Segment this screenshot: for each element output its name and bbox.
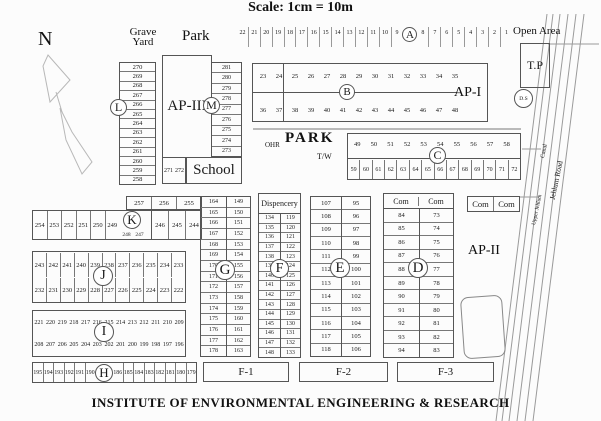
plot-number: 132 (281, 338, 300, 348)
block-k-under-plots: 248247 (120, 230, 146, 239)
plot-number: 186 (113, 363, 123, 382)
plot-number: 256 (151, 197, 176, 209)
plot-number: 113 (311, 276, 341, 289)
plot-number: 274 (212, 135, 241, 145)
plot-number: 145 (259, 319, 280, 329)
plot-number: 62 (384, 160, 396, 179)
commercial-pair-boxes: ComCom (467, 196, 520, 212)
plot-number: 133 (281, 347, 300, 357)
plot-number: 115 (311, 303, 341, 316)
block-h-right-plots: 186185184183182181180179 (113, 363, 196, 382)
plot-number: 182 (154, 363, 165, 382)
plot-number: 119 (281, 214, 300, 223)
plot-number: 240 (74, 253, 88, 277)
ap1-area-label: AP-I (454, 85, 481, 101)
plot-number: 134 (259, 214, 280, 223)
plot-number: 15 (320, 27, 332, 47)
plot-number: 166 (201, 217, 226, 228)
plot-number: 93 (384, 330, 419, 344)
plot-number: 250 (90, 211, 105, 239)
plot-number: 89 (384, 276, 419, 290)
plot-number: 7 (429, 27, 441, 47)
plot-number: 72 (508, 160, 520, 179)
plot-number: 158 (227, 292, 250, 303)
plot-number: 247 (133, 230, 146, 239)
plot-number: 84 (384, 209, 419, 222)
block-f-left-column: 1341351361371381391401411421431441451461… (259, 214, 280, 357)
plot-number: 136 (259, 232, 280, 242)
block-d-right-column: 7374757677787980818283 (419, 209, 453, 357)
plot-number: 176 (201, 324, 226, 335)
plot-number: 135 (259, 223, 280, 233)
plot-number: 121 (281, 232, 300, 242)
f3-area: F-3 (397, 362, 494, 382)
plot-number: 105 (342, 329, 370, 342)
plot-number: 14 (332, 27, 344, 47)
plot-number: 162 (227, 335, 250, 346)
plot-number: 180 (175, 363, 186, 382)
plot-number: 42 (351, 104, 367, 116)
plot-number: Com (468, 197, 493, 211)
plot-number: 3 (477, 27, 489, 47)
plot-number: 150 (227, 207, 250, 218)
plot-number: 118 (311, 343, 341, 356)
plot-number: 252 (61, 211, 76, 239)
block-d-left-column: 8485868788899091929394 (384, 209, 419, 357)
plot-number: 102 (342, 289, 370, 302)
plot-number: 6 (441, 27, 453, 47)
plot-number: 245 (168, 211, 185, 239)
plot-number: 235 (143, 253, 157, 277)
plot-number: 11 (368, 27, 380, 47)
plot-number: 18 (285, 27, 297, 47)
plot-number: 137 (259, 242, 280, 252)
plot-number: 107 (311, 197, 341, 209)
plot-number: 193 (53, 363, 64, 382)
plot-number: 59 (348, 160, 359, 179)
plot-number: Com (493, 197, 519, 211)
plot-number: 103 (342, 303, 370, 316)
plot-number: 263 (120, 128, 155, 137)
block-h-marker: H (95, 364, 113, 382)
plot-number: 147 (259, 338, 280, 348)
plot-number: 173 (201, 292, 226, 303)
plot-number: 242 (46, 253, 60, 277)
plot-number: 196 (173, 334, 185, 356)
block-l-marker: L (110, 99, 127, 116)
plot-number: 117 (311, 329, 341, 342)
ap2-area-label: AP-II (468, 243, 500, 259)
plot-number: Com (418, 197, 453, 206)
plot-number: 57 (482, 138, 499, 150)
plot-number: 218 (68, 312, 80, 334)
plot-number: 129 (281, 309, 300, 319)
plot-number: 33 (415, 70, 431, 82)
block-b-marker: B (339, 84, 355, 100)
plot-number: Com (384, 197, 418, 206)
plot-number: 254 (33, 211, 47, 239)
block-e-marker: E (330, 258, 350, 278)
plot-number: 101 (342, 276, 370, 289)
plot-number: 213 (127, 312, 139, 334)
plot-number: 195 (33, 363, 43, 382)
plot-number: 143 (259, 299, 280, 309)
plot-number: 178 (201, 345, 226, 356)
park-mid-label: PARK (285, 130, 334, 147)
plot-number: 106 (342, 343, 370, 356)
plot-number: 164 (201, 197, 226, 207)
plot-number: 20 (261, 27, 273, 47)
block-h-outline: 195194193192191190 H 1861851841831821811… (32, 362, 197, 383)
plot-number: 16 (308, 27, 320, 47)
plot-number: 198 (150, 334, 162, 356)
plot-number: 154 (227, 249, 250, 260)
plot-number: 98 (342, 236, 370, 249)
block-a-strip: 222120191817161514131211109 A 87654321 (237, 27, 512, 47)
plot-number: 237 (115, 253, 129, 277)
plot-number: 79 (420, 289, 453, 303)
plot-number: 91 (384, 303, 419, 317)
plot-number: 251 (76, 211, 91, 239)
plot-number: 210 (162, 312, 174, 334)
plot-number: 236 (129, 253, 143, 277)
plot-number: 212 (138, 312, 150, 334)
plot-number: 50 (366, 138, 383, 150)
plot-number: 92 (384, 316, 419, 330)
plot-number: 49 (349, 138, 366, 150)
plot-number: 37 (271, 104, 287, 116)
plot-number: 26 (303, 70, 319, 82)
plot-number: 10 (380, 27, 392, 47)
plot-number: 224 (143, 278, 157, 302)
plot-number: 5 (453, 27, 465, 47)
plot-number: 40 (319, 104, 335, 116)
plot-number: 204 (80, 334, 92, 356)
plot-number: 271 (163, 158, 174, 183)
plot-number: 269 (120, 71, 155, 80)
plot-number: 55 (449, 138, 466, 150)
plot-number: 200 (127, 334, 139, 356)
plot-number: 219 (56, 312, 68, 334)
plot-number: 231 (46, 278, 60, 302)
plot-number: 258 (120, 175, 155, 184)
plot-number: 159 (227, 303, 250, 314)
plot-number: 126 (281, 280, 300, 290)
plot-number: 221 (33, 312, 45, 334)
plot-number: 17 (296, 27, 308, 47)
block-b-top-row: 23242526272829303132333435 (255, 70, 463, 82)
plot-number: 30 (367, 70, 383, 82)
plot-number: 167 (201, 228, 226, 239)
plot-number: 27 (319, 70, 335, 82)
plot-number: 74 (420, 222, 453, 236)
plot-number: 22 (237, 27, 249, 47)
plot-number: 39 (303, 104, 319, 116)
plot-number: 181 (165, 363, 176, 382)
plot-number: 83 (420, 343, 453, 357)
plot-number: 197 (162, 334, 174, 356)
plot-number: 65 (421, 160, 433, 179)
block-g-marker: G (215, 260, 235, 280)
block-f-right-column: 1191201211221231241251261271281291301311… (280, 214, 300, 357)
plot-number: 24 (271, 70, 287, 82)
plot-number: 96 (342, 209, 370, 222)
plot-number: 131 (281, 328, 300, 338)
plot-number: 64 (409, 160, 421, 179)
tube-well-label: T/W (317, 152, 332, 161)
plot-number: 168 (201, 239, 226, 250)
plot-number: 152 (227, 228, 250, 239)
plot-number: 280 (212, 72, 241, 82)
plot-number: 23 (255, 70, 271, 82)
plot-number: 192 (64, 363, 75, 382)
plot-number: 31 (383, 70, 399, 82)
plot-number: 60 (359, 160, 371, 179)
plot-number: 172 (201, 281, 226, 292)
plot-number: 51 (382, 138, 399, 150)
plot-number: 82 (420, 330, 453, 344)
plot-number: 194 (43, 363, 54, 382)
plot-number: 232 (33, 278, 46, 302)
ds-circle: D.S (514, 89, 533, 108)
plot-number: 47 (431, 104, 447, 116)
plot-number: 78 (420, 276, 453, 290)
plot-number: 44 (383, 104, 399, 116)
block-k-outline: 254253252251250249 246245244 (32, 210, 202, 240)
plot-number: 281 (212, 63, 241, 72)
plot-number: 80 (420, 303, 453, 317)
plot-number: 185 (123, 363, 134, 382)
plot-number: 41 (335, 104, 351, 116)
f1-area: F-1 (203, 362, 289, 382)
map-title: INSTITUTE OF ENVIRONMENTAL ENGINEERING &… (0, 395, 601, 411)
plot-number: 85 (384, 222, 419, 236)
plot-number: 2 (489, 27, 501, 47)
plot-number: 253 (47, 211, 62, 239)
plot-number: 86 (384, 235, 419, 249)
block-k-right-plots: 246245244 (151, 211, 202, 239)
plot-number: 90 (384, 289, 419, 303)
plot-number: 109 (311, 223, 341, 236)
plot-number: 56 (465, 138, 482, 150)
plot-number: 248 (120, 230, 133, 239)
plot-number: 233 (171, 253, 185, 277)
plot-number: 8 (417, 27, 429, 47)
plot-number: 110 (311, 236, 341, 249)
plot-number: 29 (351, 70, 367, 82)
block-c-marker: C (429, 147, 446, 164)
plot-number: 201 (115, 334, 127, 356)
block-l-column: 270269268267266265264263262261260259258 (119, 62, 156, 185)
plot-number: 220 (45, 312, 57, 334)
park-top-label: Park (182, 28, 210, 45)
grave-yard-label: Grave Yard (118, 27, 168, 47)
plot-number: 174 (201, 303, 226, 314)
plot-number: 261 (120, 147, 155, 156)
plot-number: 108 (311, 209, 341, 222)
plots-271-272: 271272 (162, 157, 186, 184)
plot-number: 183 (144, 363, 155, 382)
f2-area: F-2 (299, 362, 388, 382)
plot-number: 272 (174, 158, 185, 183)
plot-number: 142 (259, 290, 280, 300)
plot-number: 257 (127, 197, 151, 209)
plot-number: 81 (420, 316, 453, 330)
plot-number: 1 (501, 27, 512, 47)
plot-number: 208 (33, 334, 45, 356)
dispensary-label: Dispencery (259, 194, 300, 214)
plot-number: 104 (342, 316, 370, 329)
block-a-marker: A (402, 27, 417, 42)
plot-number: 184 (133, 363, 144, 382)
plot-number: 127 (281, 290, 300, 300)
plot-number: 259 (120, 165, 155, 174)
plot-number: 75 (420, 235, 453, 249)
plot-number: 268 (120, 81, 155, 90)
plot-number: 207 (45, 334, 57, 356)
plot-number: 68 (458, 160, 470, 179)
plot-number: 130 (281, 319, 300, 329)
plot-number: 165 (201, 207, 226, 218)
building-footprint-outline (460, 295, 506, 360)
block-b-bottom-row: 36373839404142434445464748 (255, 104, 463, 116)
block-k-top-strip: 257256255 (126, 196, 202, 210)
plot-number: 241 (60, 253, 74, 277)
block-k-marker: K (123, 211, 141, 229)
plot-number: 175 (201, 313, 226, 324)
plot-number: 4 (465, 27, 477, 47)
plot-number: 190 (85, 363, 96, 382)
block-b-midline (253, 92, 457, 93)
plot-number: 43 (367, 104, 383, 116)
block-b-outline: 23242526272829303132333435 3637383940414… (252, 63, 488, 122)
plot-number: 70 (483, 160, 495, 179)
plot-number: 36 (255, 104, 271, 116)
open-area-label: Open Area (513, 25, 560, 37)
compass-north-label: N (38, 28, 52, 51)
plot-number: 222 (171, 278, 185, 302)
plot-number: 61 (372, 160, 384, 179)
plot-number: 276 (212, 114, 241, 124)
plot-number: 97 (342, 223, 370, 236)
plot-number: 214 (115, 312, 127, 334)
plot-number: 69 (471, 160, 483, 179)
plot-number: 249 (105, 211, 120, 239)
plot-number: 179 (186, 363, 197, 382)
plot-number: 151 (227, 217, 250, 228)
plot-number: 229 (74, 278, 88, 302)
plot-number: 34 (431, 70, 447, 82)
plot-number: 157 (227, 281, 250, 292)
north-arrow-icon (43, 55, 92, 174)
plot-number: 160 (227, 313, 250, 324)
plot-number: 199 (138, 334, 150, 356)
plot-number: 71 (495, 160, 507, 179)
block-d-com-headers: ComCom (384, 194, 453, 209)
block-k-left-plots: 254253252251250249 (33, 211, 119, 239)
plot-number: 225 (129, 278, 143, 302)
plot-number: 52 (399, 138, 416, 150)
plot-number: 73 (420, 209, 453, 222)
plot-number: 122 (281, 242, 300, 252)
plot-number: 67 (446, 160, 458, 179)
school-area: School (186, 157, 242, 184)
plot-number: 255 (176, 197, 201, 209)
plot-number: 21 (249, 27, 261, 47)
plot-number: 234 (157, 253, 171, 277)
tp-plot-box: T.P (520, 43, 550, 88)
plot-number: 279 (212, 83, 241, 93)
plot-number: 267 (120, 90, 155, 99)
plot-number: 230 (60, 278, 74, 302)
plot-number: 38 (287, 104, 303, 116)
plot-number: 243 (33, 253, 46, 277)
plot-number: 148 (259, 347, 280, 357)
plot-number: 63 (396, 160, 408, 179)
plot-number: 116 (311, 316, 341, 329)
plot-number: 19 (273, 27, 285, 47)
plot-number: 46 (415, 104, 431, 116)
plot-number: 141 (259, 280, 280, 290)
plot-number: 275 (212, 125, 241, 135)
site-plan-map: Scale: 1cm = 10m N Grave Yard Park Open … (0, 0, 601, 421)
plot-number: 94 (384, 343, 419, 357)
plot-number: 48 (447, 104, 463, 116)
block-j-marker: J (93, 266, 113, 286)
plot-number: 217 (80, 312, 92, 334)
plot-number: 45 (399, 104, 415, 116)
plot-number: 161 (227, 324, 250, 335)
plot-number: 191 (74, 363, 85, 382)
plot-number: 246 (152, 211, 168, 239)
plot-number: 209 (173, 312, 185, 334)
scale-text: Scale: 1cm = 10m (0, 0, 601, 16)
plot-number: 12 (356, 27, 368, 47)
plot-number: 13 (344, 27, 356, 47)
block-m-marker: M (203, 97, 220, 114)
plot-number: 177 (201, 335, 226, 346)
plot-number: 146 (259, 328, 280, 338)
plot-number: 163 (227, 345, 250, 356)
plot-number: 205 (68, 334, 80, 356)
plot-number: 206 (56, 334, 68, 356)
plot-number: 9 (392, 27, 403, 47)
plot-number: 32 (399, 70, 415, 82)
block-a-plots-right: 87654321 (417, 27, 512, 47)
plot-number: 211 (150, 312, 162, 334)
plot-number: 144 (259, 309, 280, 319)
block-i-marker: I (94, 322, 114, 342)
plot-number: 270 (120, 63, 155, 71)
ohr-label: OHR (265, 141, 280, 149)
plot-number: 114 (311, 289, 341, 302)
plot-number: 169 (201, 249, 226, 260)
plot-number: 95 (342, 197, 370, 209)
plot-number: 149 (227, 197, 250, 207)
plot-number: 273 (212, 146, 241, 156)
plot-number: 28 (335, 70, 351, 82)
plot-number: 128 (281, 299, 300, 309)
plot-number: 226 (115, 278, 129, 302)
plot-number: 53 (415, 138, 432, 150)
plot-number: 223 (157, 278, 171, 302)
plot-number: 120 (281, 223, 300, 233)
plot-number: 58 (498, 138, 515, 150)
plot-number: 35 (447, 70, 463, 82)
block-f-marker: F (270, 259, 289, 278)
block-a-plots-left: 222120191817161514131211109 (237, 27, 402, 47)
block-e-right-column: 9596979899100101102103104105106 (341, 197, 370, 356)
